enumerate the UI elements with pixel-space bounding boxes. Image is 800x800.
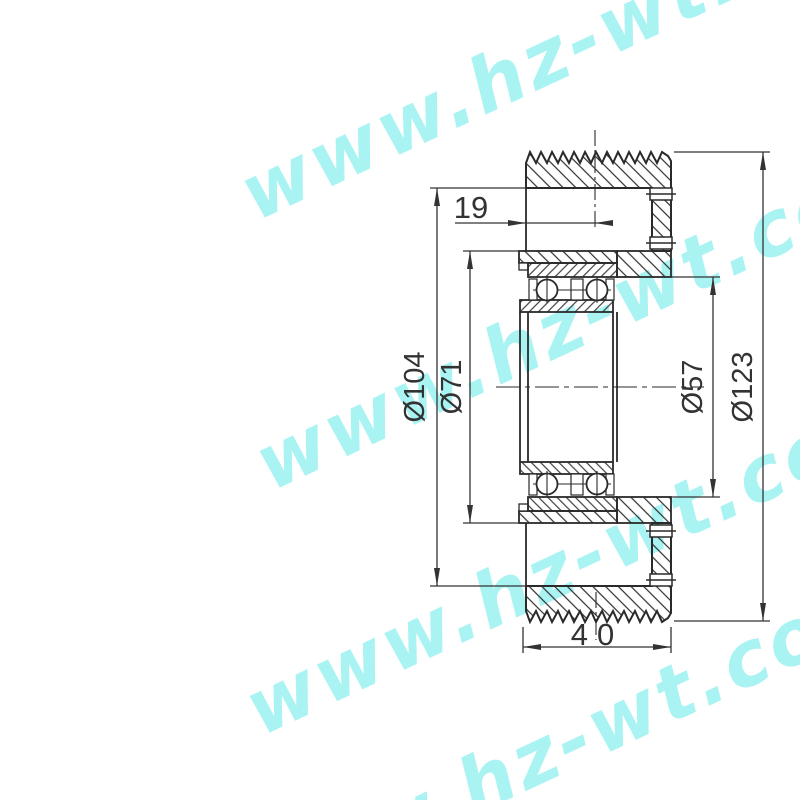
retaining-lip-bottom <box>519 504 528 511</box>
retaining-lip-top <box>519 263 528 270</box>
pulley-rim-bottom <box>526 523 671 622</box>
dim-hub-bore-dia-label: Ø57 <box>677 360 709 415</box>
hub-bottom <box>617 497 671 523</box>
outer-ring-lower <box>528 497 617 511</box>
outer-ring-upper <box>528 263 617 277</box>
dim-overall-width-label: 40 <box>571 617 623 652</box>
bearing-upper <box>520 263 617 312</box>
bearing-lower <box>520 462 617 511</box>
dim-outer-dia-label: Ø123 <box>727 352 759 423</box>
inner-ring-lower <box>520 462 613 474</box>
inner-ring-upper <box>520 300 613 312</box>
dim-groove-offset-label: 19 <box>454 190 488 225</box>
drawing-canvas: Ø104 Ø71 Ø57 Ø123 <box>0 0 800 800</box>
housing-web-bottom <box>519 511 617 523</box>
dim-rim-inner-dia-label: Ø104 <box>399 352 431 423</box>
technical-drawing-page: www.hz-wt.co www.hz-wt.co www.hz-wt.co w… <box>0 0 800 800</box>
dim-bearing-seat-dia-label: Ø71 <box>436 360 468 415</box>
housing-web-top <box>519 251 617 263</box>
pulley-rim-top <box>526 152 671 251</box>
hub-top <box>617 251 671 277</box>
